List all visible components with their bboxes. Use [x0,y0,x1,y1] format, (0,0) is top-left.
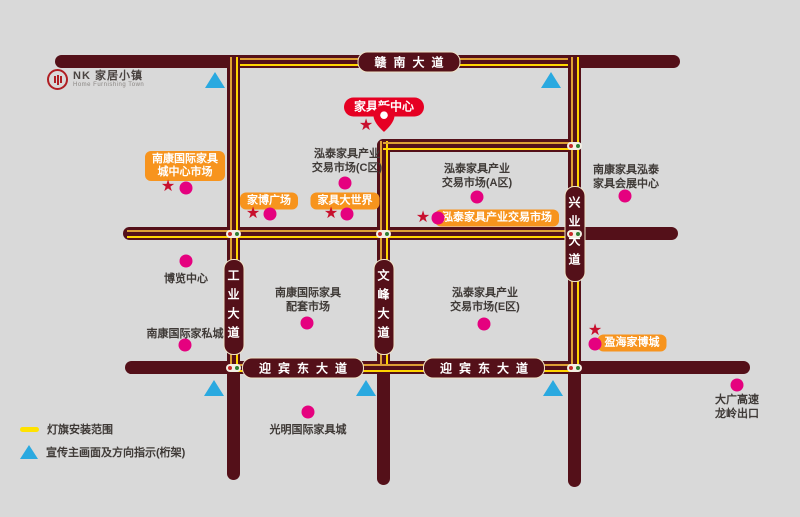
banner-triangle-icon [205,72,225,88]
place-label-nankang-hongtai-exhibition-center: 南康家具泓泰家具会展中心 [593,163,659,191]
traffic-signal-icon [567,364,582,372]
orange-label-hongtai-trading-market: 泓泰家具产业交易市场 [435,210,559,227]
legend-direction-row: 宣传主画面及方向指示(桁架) [20,444,185,460]
banner-triangle-icon [541,72,561,88]
logo-brand-text: NK 家居小镇 [73,70,144,82]
place-dot [341,208,354,221]
banner-triangle-icon [204,380,224,396]
place-label-hongtai-market-e: 泓泰家具产业交易市场(E区) [450,286,520,314]
orange-label-yinghai-jiabo-city: 盈海家博城 [598,335,667,352]
place-dot [264,208,277,221]
place-dot [180,182,193,195]
star-icon: ★ [416,210,430,226]
place-dot [619,190,632,203]
legend-direction-label: 宣传主画面及方向指示(桁架) [46,444,185,460]
star-icon: ★ [324,206,338,222]
traffic-signal-icon [376,230,391,238]
star-icon: ★ [359,118,373,134]
road-label-yingbin-east-avenue: 迎宾东大道 [242,357,364,378]
yellow-dash-icon [20,427,39,432]
place-dot [339,177,352,190]
place-label-expo-center: 博览中心 [164,272,208,286]
road-label-gongye-avenue: 工业大道 [223,259,244,355]
place-dot [302,406,315,419]
orange-label-nankang-intl-center-market: 南康国际家具城中心市场 [145,151,225,181]
banner-triangle-icon [356,380,376,396]
traffic-signal-icon [567,230,582,238]
place-label-hongtai-market-a: 泓泰家具产业交易市场(A区) [442,162,512,190]
place-dot [180,255,193,268]
place-dot [589,338,602,351]
star-icon: ★ [161,179,175,195]
traffic-signal-icon [567,142,582,150]
legend-flag-range-row: 灯旗安装范围 [20,421,185,437]
place-label-nankang-intl-supporting-market: 南康国际家具配套市场 [275,286,341,314]
location-pin-icon [374,105,395,137]
road-label-gannan-avenue: 赣南大道 [357,51,460,72]
place-dot [478,318,491,331]
place-dot [731,379,744,392]
flag-line [127,230,574,238]
road-label-yingbin-east-avenue: 迎宾东大道 [423,357,545,378]
banner-triangle-icon [543,380,563,396]
flag-line [383,142,571,150]
legend-flag-range-label: 灯旗安装范围 [47,421,113,437]
place-dot [301,317,314,330]
furnishing-town-map: NK 家居小镇 Home Furnishing Town 灯旗安装范围 宣传主画… [0,0,800,517]
place-label-guangming-intl-furniture-city: 光明国际家具城 [270,423,347,437]
nk-logo-icon [47,69,68,90]
nk-logo: NK 家居小镇 Home Furnishing Town [47,69,144,90]
place-label-hongtai-market-c: 泓泰家具产业交易市场(C区) [312,147,382,175]
place-dot [471,191,484,204]
place-label-daguang-expressway-longling-exit: 大广高速龙岭出口 [715,393,759,421]
logo-subtitle-text: Home Furnishing Town [73,82,144,89]
traffic-signal-icon [226,364,241,372]
map-legend: 灯旗安装范围 宣传主画面及方向指示(桁架) [20,421,185,460]
blue-triangle-icon [20,445,38,459]
place-dot [432,212,445,225]
star-icon: ★ [246,206,260,222]
traffic-signal-icon [226,230,241,238]
place-dot [179,339,192,352]
road-label-wenfeng-avenue: 文峰大道 [373,259,394,355]
